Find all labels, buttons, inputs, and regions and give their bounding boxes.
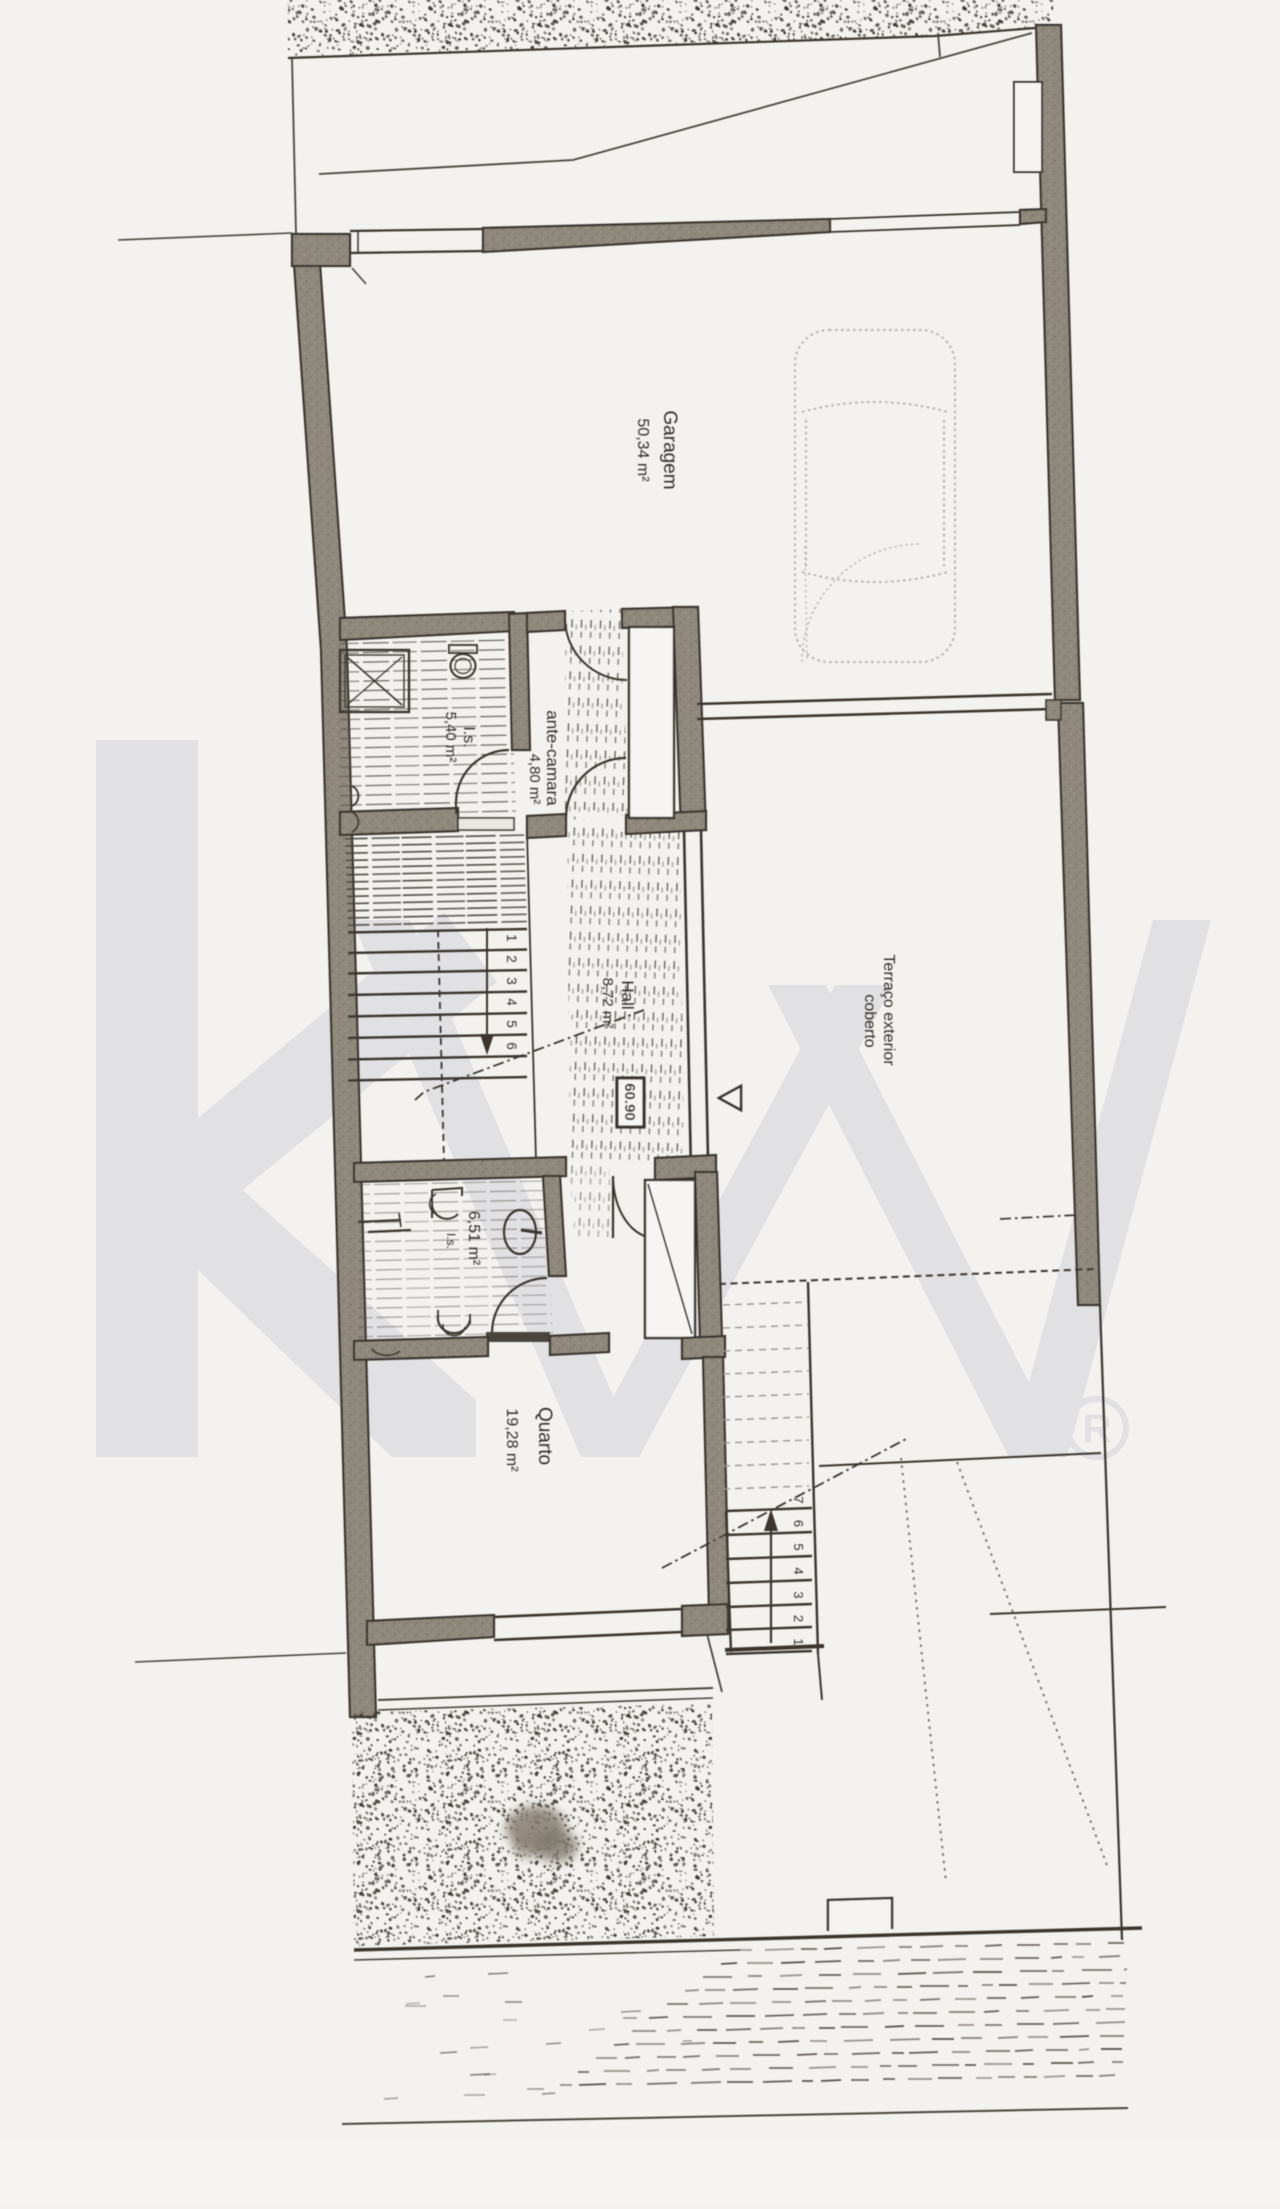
svg-text:7: 7 xyxy=(791,1496,806,1503)
svg-text:19,28 m²: 19,28 m² xyxy=(503,1408,520,1472)
svg-text:Terraço exterior: Terraço exterior xyxy=(880,954,897,1066)
svg-text:1: 1 xyxy=(791,1638,806,1645)
svg-text:5,40 m²: 5,40 m² xyxy=(442,712,459,763)
svg-text:50,34 m²: 50,34 m² xyxy=(634,418,651,482)
svg-text:4,80 m²: 4,80 m² xyxy=(526,754,543,805)
svg-text:ante-camara: ante-camara xyxy=(543,710,562,806)
svg-text:5: 5 xyxy=(504,1020,519,1028)
svg-text:Garagem: Garagem xyxy=(659,410,680,489)
svg-text:2: 2 xyxy=(504,955,519,963)
svg-text:1: 1 xyxy=(504,934,519,942)
svg-text:3: 3 xyxy=(791,1591,806,1598)
svg-text:I.s.: I.s. xyxy=(444,1233,458,1249)
svg-text:Quarto: Quarto xyxy=(534,1407,555,1465)
svg-text:4: 4 xyxy=(504,998,519,1006)
svg-text:2: 2 xyxy=(791,1615,806,1622)
svg-text:60.90: 60.90 xyxy=(621,1083,638,1121)
svg-text:R: R xyxy=(1083,1407,1112,1451)
svg-text:5: 5 xyxy=(791,1543,806,1550)
svg-text:Hall: Hall xyxy=(618,980,637,1009)
svg-text:6: 6 xyxy=(791,1520,806,1527)
svg-text:I.s.: I.s. xyxy=(460,726,477,747)
svg-text:8,72 m²: 8,72 m² xyxy=(599,978,616,1029)
svg-text:4: 4 xyxy=(791,1567,806,1574)
svg-text:coberto: coberto xyxy=(861,994,878,1047)
svg-text:6: 6 xyxy=(504,1042,519,1050)
svg-text:3: 3 xyxy=(504,977,519,985)
svg-text:6,51 m²: 6,51 m² xyxy=(465,1211,482,1266)
